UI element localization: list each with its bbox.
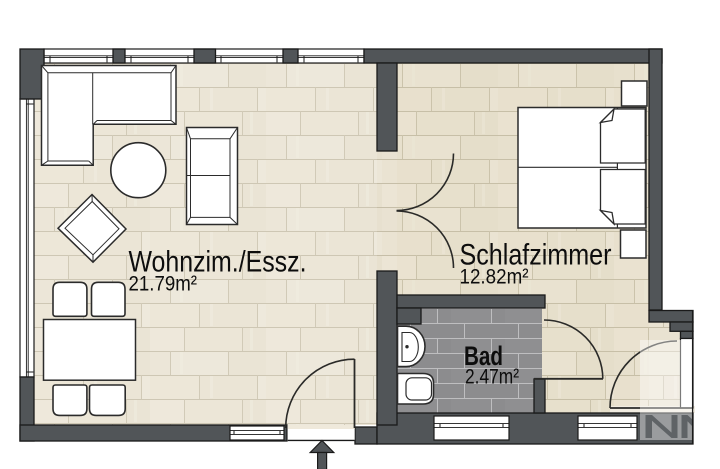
svg-text:12.82m²: 12.82m² <box>460 266 529 289</box>
svg-text:21.79m²: 21.79m² <box>129 273 198 296</box>
svg-text:2.47m²: 2.47m² <box>465 366 519 389</box>
